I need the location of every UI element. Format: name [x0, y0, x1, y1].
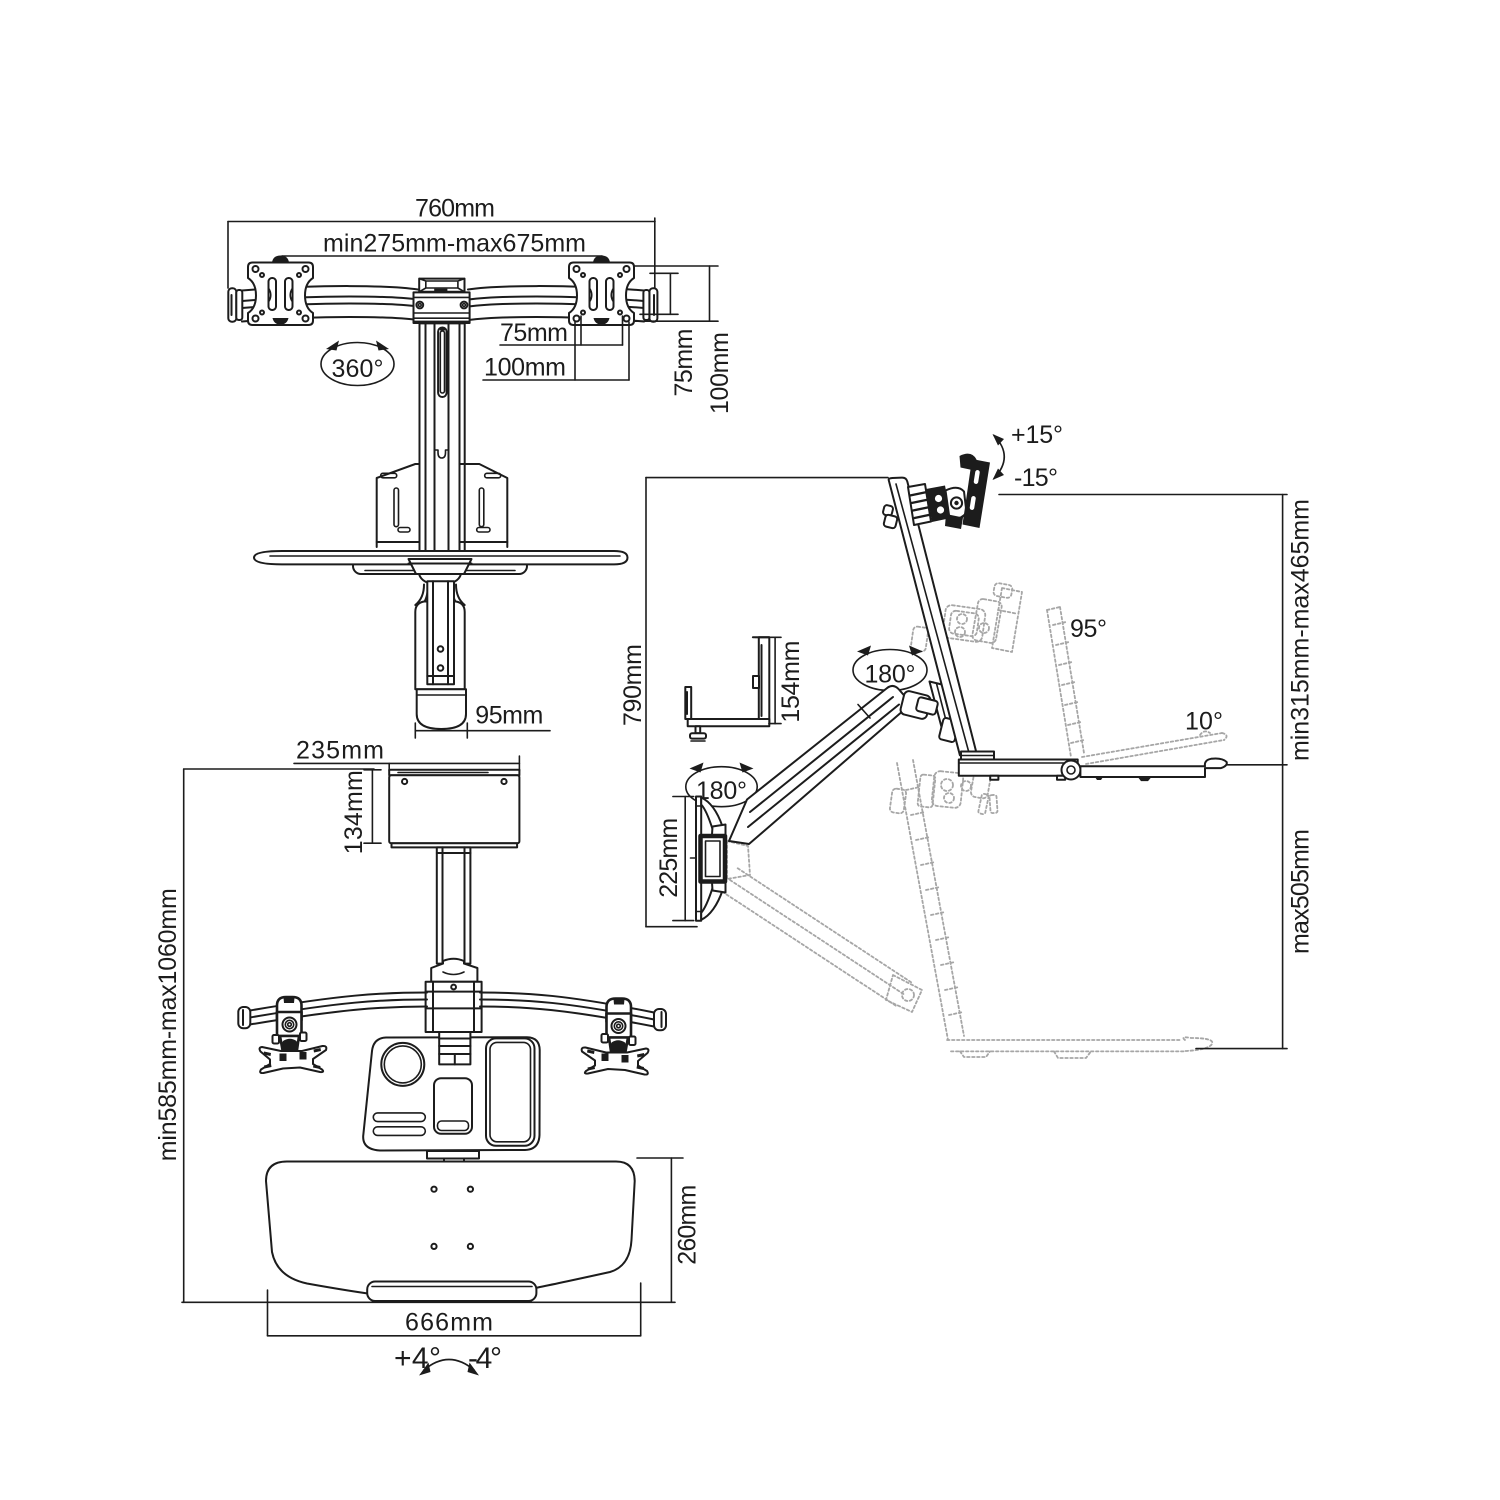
- svg-text:100mm: 100mm: [706, 332, 734, 414]
- svg-text:360°: 360°: [332, 355, 384, 383]
- svg-text:760mm: 760mm: [415, 195, 495, 223]
- svg-text:min585mm-max1060mm: min585mm-max1060mm: [154, 888, 182, 1161]
- svg-text:260mm: 260mm: [674, 1185, 702, 1265]
- svg-text:180°: 180°: [865, 661, 916, 689]
- svg-text:154mm: 154mm: [777, 641, 805, 723]
- svg-text:max505mm: max505mm: [1287, 829, 1315, 954]
- svg-text:666mm: 666mm: [405, 1308, 493, 1336]
- svg-text:min315mm-max465mm: min315mm-max465mm: [1287, 499, 1315, 761]
- svg-text:225mm: 225mm: [655, 818, 683, 898]
- svg-text:10°: 10°: [1185, 707, 1223, 735]
- svg-text:95°: 95°: [1070, 615, 1107, 643]
- svg-text:+4°: +4°: [394, 1342, 441, 1375]
- svg-text:95mm: 95mm: [475, 702, 543, 730]
- svg-text:134mm: 134mm: [340, 770, 368, 854]
- svg-text:-15°: -15°: [1014, 464, 1058, 492]
- svg-text:75mm: 75mm: [500, 319, 568, 347]
- svg-text:235mm: 235mm: [296, 737, 384, 765]
- svg-text:min275mm-max675mm: min275mm-max675mm: [323, 230, 586, 258]
- svg-text:790mm: 790mm: [619, 644, 647, 726]
- svg-text:+15°: +15°: [1011, 421, 1063, 449]
- svg-text:100mm: 100mm: [484, 354, 566, 382]
- svg-text:75mm: 75mm: [670, 329, 698, 397]
